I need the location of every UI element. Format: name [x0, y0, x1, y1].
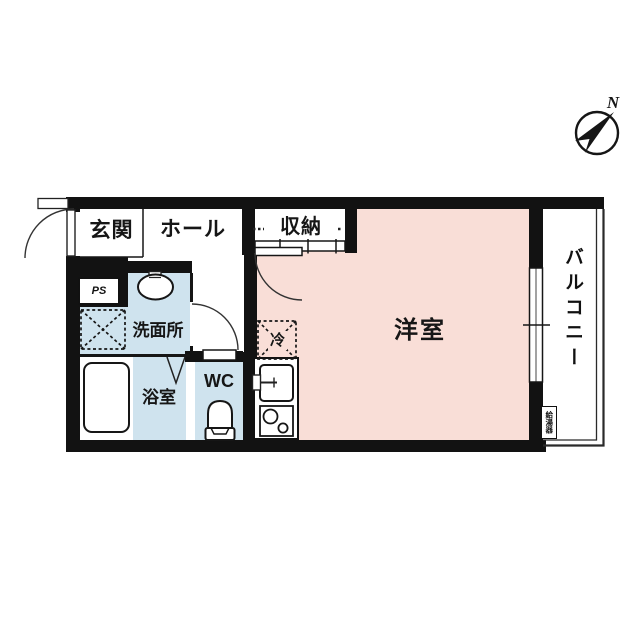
toilet-icon — [206, 401, 235, 440]
entrance-door-leaf — [67, 210, 75, 256]
bathroom-folding-door — [167, 357, 185, 383]
room-door-arc — [255, 253, 302, 300]
genkan-label: 玄関 — [80, 216, 143, 244]
bathtub-icon — [84, 363, 129, 432]
washing-machine-space-icon — [81, 310, 125, 349]
kitchen-sink-icon — [253, 365, 294, 401]
washroom-label: 洗面所 — [128, 320, 188, 340]
closet-label: 収納 — [264, 215, 338, 239]
washroom-door-arc — [192, 304, 238, 350]
bathroom-label: 浴室 — [140, 387, 178, 407]
fixture-linework — [0, 0, 640, 640]
room-door-leaf — [255, 248, 302, 256]
exterior-ledge — [38, 199, 68, 209]
hall-label: ホール — [148, 215, 238, 243]
wc-door-leaf — [203, 350, 236, 360]
compass-n-label: N — [604, 93, 622, 111]
balcony-window-icon — [523, 268, 550, 382]
wc-label: WC — [201, 371, 237, 391]
floor-plan: PS 給湯器 — [0, 0, 640, 640]
balcony-label: バルコニー — [559, 247, 586, 397]
compass-icon — [575, 112, 618, 154]
washbasin-icon — [138, 272, 173, 300]
stove-icon — [260, 406, 293, 436]
refrigerator-label: 冷 — [268, 331, 287, 350]
western-room-label: 洋室 — [388, 316, 452, 346]
